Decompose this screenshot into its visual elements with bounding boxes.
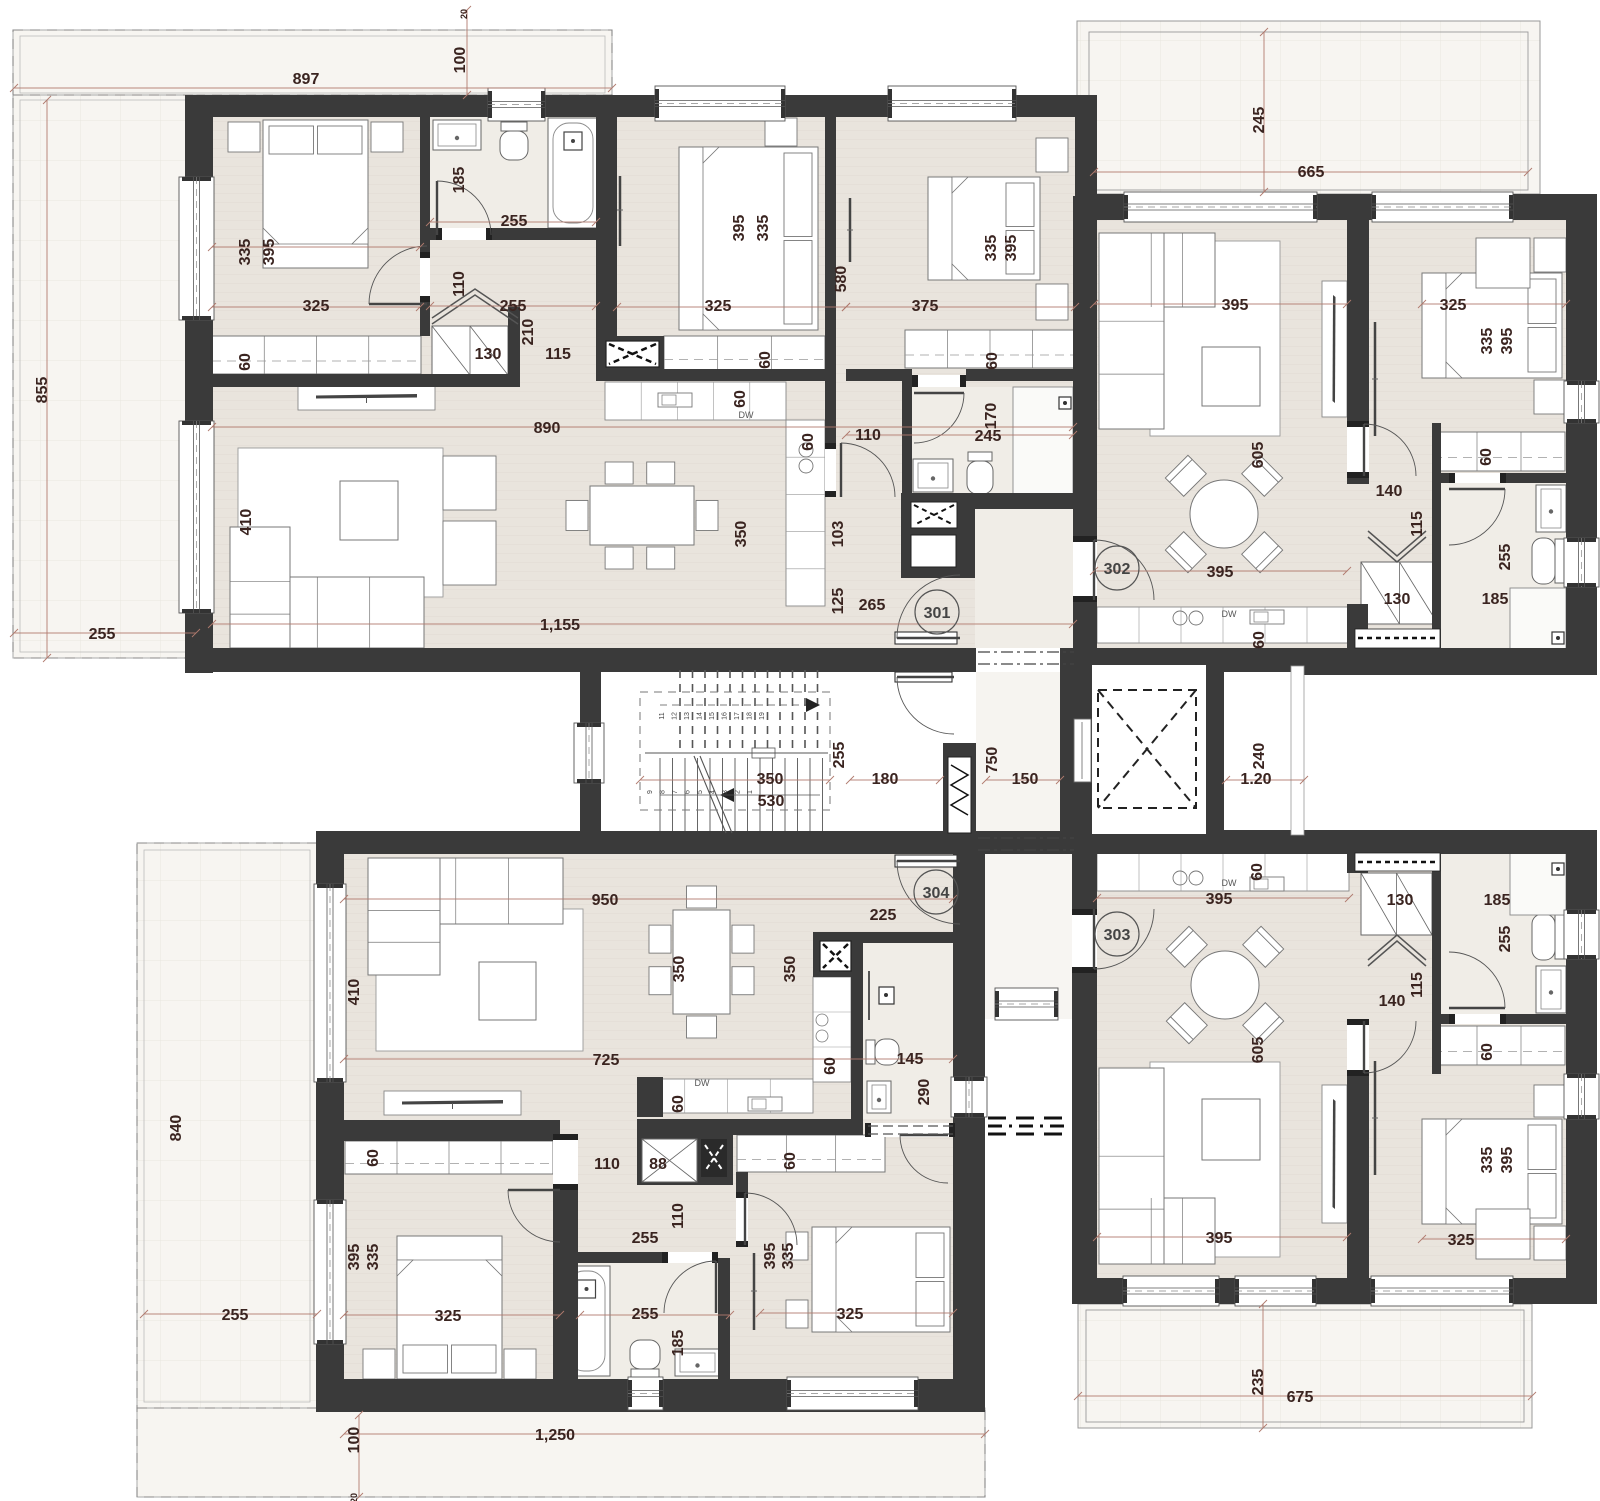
svg-text:325: 325 (435, 1308, 462, 1325)
svg-text:115: 115 (1409, 511, 1426, 537)
svg-text:110: 110 (451, 271, 468, 297)
svg-text:605: 605 (1250, 1037, 1267, 1064)
svg-text:950: 950 (592, 892, 619, 909)
svg-text:580: 580 (833, 266, 850, 293)
svg-text:245: 245 (1251, 107, 1268, 134)
svg-text:210: 210 (520, 319, 537, 346)
svg-text:750: 750 (984, 747, 1001, 774)
svg-text:60: 60 (757, 351, 774, 369)
svg-text:335: 335 (1479, 1147, 1496, 1174)
svg-text:8: 8 (660, 790, 667, 794)
svg-text:16: 16 (722, 712, 729, 720)
svg-text:290: 290 (916, 1079, 933, 1106)
svg-text:DW: DW (1222, 878, 1237, 888)
svg-text:840: 840 (168, 1115, 185, 1142)
svg-text:395: 395 (1222, 297, 1249, 314)
svg-text:325: 325 (1440, 297, 1467, 314)
svg-text:301: 301 (924, 605, 951, 622)
svg-text:6: 6 (685, 790, 692, 794)
svg-text:103: 103 (830, 521, 847, 548)
svg-text:255: 255 (500, 298, 527, 315)
svg-text:88: 88 (649, 1156, 667, 1173)
svg-text:60: 60 (732, 390, 749, 408)
svg-text:245: 245 (975, 428, 1002, 445)
svg-text:60: 60 (237, 353, 254, 371)
svg-text:20: 20 (349, 1493, 359, 1501)
svg-text:265: 265 (859, 597, 886, 614)
svg-text:100: 100 (452, 47, 469, 74)
svg-text:395: 395 (1499, 328, 1516, 355)
svg-text:60: 60 (365, 1149, 382, 1167)
svg-text:395: 395 (731, 215, 748, 242)
svg-text:14: 14 (697, 712, 704, 720)
svg-text:325: 325 (837, 1306, 864, 1323)
svg-text:1.20: 1.20 (1240, 771, 1271, 788)
svg-text:185: 185 (451, 167, 468, 194)
svg-text:11: 11 (659, 712, 666, 719)
svg-text:60: 60 (800, 433, 817, 451)
svg-text:100: 100 (346, 1427, 363, 1454)
svg-text:17: 17 (734, 712, 741, 720)
svg-text:235: 235 (1250, 1369, 1267, 1396)
svg-text:350: 350 (757, 771, 784, 788)
svg-text:335: 335 (755, 215, 772, 242)
svg-text:DW: DW (739, 410, 754, 420)
svg-text:395: 395 (261, 239, 278, 266)
svg-text:335: 335 (237, 239, 254, 266)
svg-text:395: 395 (1003, 235, 1020, 262)
svg-text:110: 110 (670, 1203, 687, 1229)
svg-text:2: 2 (735, 790, 742, 794)
svg-text:665: 665 (1298, 164, 1325, 181)
svg-text:255: 255 (632, 1306, 659, 1323)
svg-text:395: 395 (762, 1243, 779, 1270)
svg-text:7: 7 (672, 790, 679, 794)
svg-text:335: 335 (365, 1244, 382, 1271)
svg-text:255: 255 (632, 1230, 659, 1247)
svg-text:325: 325 (705, 298, 732, 315)
svg-text:DW: DW (1222, 609, 1237, 619)
svg-text:350: 350 (671, 956, 688, 983)
svg-text:150: 150 (1012, 771, 1039, 788)
svg-text:897: 897 (293, 71, 320, 88)
svg-text:225: 225 (870, 907, 897, 924)
svg-text:DW: DW (695, 1078, 710, 1088)
svg-text:140: 140 (1379, 993, 1406, 1010)
svg-text:60: 60 (670, 1095, 687, 1113)
svg-text:335: 335 (780, 1243, 797, 1270)
svg-text:60: 60 (1478, 448, 1495, 466)
svg-text:395: 395 (1206, 891, 1233, 908)
svg-text:130: 130 (1387, 892, 1414, 909)
svg-text:855: 855 (34, 377, 51, 404)
svg-text:19: 19 (759, 712, 766, 720)
svg-text:725: 725 (593, 1052, 620, 1069)
svg-text:15: 15 (709, 712, 716, 720)
svg-text:170: 170 (983, 403, 1000, 430)
svg-text:375: 375 (912, 298, 939, 315)
svg-text:605: 605 (1250, 442, 1267, 469)
svg-text:60: 60 (1479, 1043, 1496, 1061)
svg-text:255: 255 (1497, 544, 1514, 571)
svg-text:180: 180 (872, 771, 899, 788)
svg-text:13: 13 (684, 712, 691, 720)
svg-text:60: 60 (1251, 631, 1268, 649)
svg-text:5: 5 (697, 790, 704, 794)
svg-text:130: 130 (1384, 591, 1411, 608)
svg-text:302: 302 (1104, 561, 1131, 578)
svg-text:60: 60 (984, 352, 1001, 370)
svg-text:185: 185 (1484, 892, 1511, 909)
svg-text:1,155: 1,155 (540, 617, 580, 634)
svg-text:18: 18 (747, 712, 754, 720)
svg-text:255: 255 (1497, 926, 1514, 953)
svg-text:325: 325 (303, 298, 330, 315)
svg-text:110: 110 (855, 427, 881, 444)
svg-text:255: 255 (831, 742, 848, 769)
svg-text:325: 325 (1448, 1232, 1475, 1249)
svg-text:130: 130 (475, 346, 502, 363)
svg-text:3: 3 (722, 790, 729, 794)
svg-text:335: 335 (1479, 328, 1496, 355)
svg-text:185: 185 (670, 1330, 687, 1357)
svg-text:304: 304 (923, 885, 950, 902)
svg-text:115: 115 (1409, 972, 1426, 998)
svg-text:530: 530 (758, 793, 785, 810)
svg-text:395: 395 (346, 1244, 363, 1271)
svg-text:20: 20 (459, 9, 469, 19)
svg-text:255: 255 (89, 626, 116, 643)
svg-text:12: 12 (672, 712, 679, 720)
svg-text:335: 335 (983, 235, 1000, 262)
svg-text:145: 145 (897, 1051, 924, 1068)
svg-text:60: 60 (1249, 863, 1266, 881)
svg-text:60: 60 (822, 1057, 839, 1075)
svg-text:185: 185 (1482, 591, 1509, 608)
svg-text:140: 140 (1376, 483, 1403, 500)
svg-text:303: 303 (1104, 927, 1131, 944)
svg-text:115: 115 (545, 346, 571, 363)
svg-text:410: 410 (238, 509, 255, 536)
svg-text:350: 350 (733, 521, 750, 548)
svg-text:1: 1 (747, 790, 754, 794)
svg-text:410: 410 (346, 979, 363, 1006)
svg-text:1,250: 1,250 (535, 1427, 575, 1444)
svg-text:675: 675 (1287, 1389, 1314, 1406)
svg-text:395: 395 (1207, 564, 1234, 581)
svg-text:395: 395 (1499, 1147, 1516, 1174)
svg-text:350: 350 (782, 956, 799, 983)
svg-text:240: 240 (1251, 743, 1268, 770)
svg-text:255: 255 (222, 1307, 249, 1324)
svg-text:255: 255 (501, 213, 528, 230)
svg-text:60: 60 (782, 1152, 799, 1170)
svg-text:125: 125 (830, 588, 847, 615)
svg-text:110: 110 (594, 1156, 620, 1173)
svg-text:890: 890 (534, 420, 561, 437)
svg-text:395: 395 (1206, 1230, 1233, 1247)
svg-text:9: 9 (647, 790, 654, 794)
